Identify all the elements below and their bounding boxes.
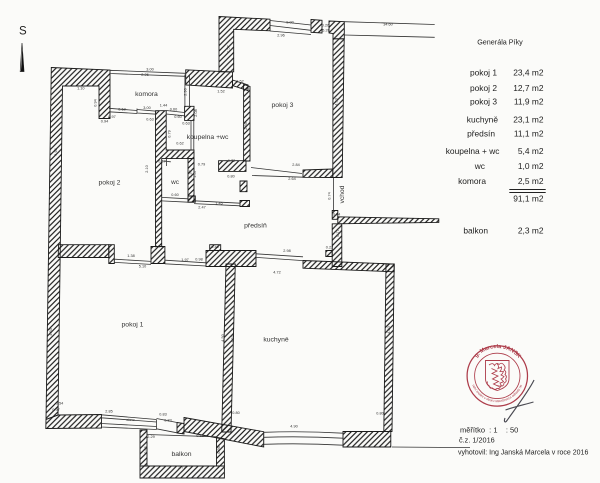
svg-text:S: S [19,26,27,38]
svg-text:1.57: 1.57 [193,170,197,177]
svg-text:2.10: 2.10 [145,165,149,172]
svg-text:5,4 m2: 5,4 m2 [518,146,544,156]
svg-text:kuchyně: kuchyně [263,337,289,344]
svg-text:5.10: 5.10 [139,265,146,269]
svg-text:0.83: 0.83 [159,413,166,417]
svg-text:23,1 m2: 23,1 m2 [513,114,544,124]
svg-text:0.72: 0.72 [228,159,235,163]
svg-text:1.38: 1.38 [127,254,134,258]
svg-text:wc: wc [474,161,485,171]
svg-text:1.97: 1.97 [181,258,188,262]
svg-text:0.63: 0.63 [146,118,153,122]
svg-text:1,0 m2: 1,0 m2 [518,161,544,171]
svg-text:wc: wc [170,179,180,186]
svg-text:4.53: 4.53 [49,328,53,335]
svg-text:pokoj 2: pokoj 2 [99,180,121,187]
svg-text:3.00: 3.00 [143,106,150,110]
svg-text:11,9 m2: 11,9 m2 [514,97,544,107]
svg-text:č.z. 1/2016: č.z. 1/2016 [459,436,495,445]
svg-text:5.26: 5.26 [322,29,329,33]
svg-text:2.29: 2.29 [147,435,154,439]
svg-text:12,7 m2: 12,7 m2 [513,83,544,93]
svg-text:předsín: předsín [467,129,495,139]
svg-text:Generála Píky: Generála Píky [477,38,523,47]
svg-text:0.95: 0.95 [144,446,148,453]
svg-text:1.44: 1.44 [160,104,167,108]
svg-text:0.17: 0.17 [155,245,162,249]
svg-text:pokoj 3: pokoj 3 [470,97,497,107]
svg-text:0.94: 0.94 [101,120,108,124]
svg-text:0.17: 0.17 [158,160,165,164]
svg-text:pokoj 3: pokoj 3 [272,102,294,109]
svg-text:0.62: 0.62 [118,108,125,112]
svg-text:0.63: 0.63 [182,122,189,126]
svg-text:4.53: 4.53 [231,335,235,342]
svg-text:pokoj 1: pokoj 1 [470,67,497,77]
svg-text:4.50: 4.50 [387,326,391,333]
svg-text:předsíň: předsíň [244,222,267,229]
svg-text:0.60: 0.60 [171,193,178,197]
svg-text:0.26: 0.26 [322,24,329,28]
svg-text:91,1 m2: 91,1 m2 [513,194,544,204]
svg-text:3.52: 3.52 [236,80,243,84]
svg-text:34.60: 34.60 [383,23,393,27]
svg-text:0.62: 0.62 [176,142,183,146]
svg-text:4.92: 4.92 [54,148,58,155]
svg-text:okno: okno [126,418,134,422]
svg-text:2.55: 2.55 [244,122,248,129]
svg-text:0.80: 0.80 [232,411,239,415]
svg-text:komora: komora [135,91,158,98]
svg-text:0.94: 0.94 [94,99,98,106]
svg-text:1.37: 1.37 [189,170,193,177]
svg-text:23,4 m2: 23,4 m2 [513,67,544,77]
svg-text:0.46: 0.46 [211,245,218,249]
svg-text:0.54: 0.54 [56,402,63,406]
svg-text:1.57: 1.57 [227,45,231,52]
svg-text:4.53: 4.53 [335,98,339,105]
svg-text:balkon: balkon [463,226,488,236]
svg-text:koupelna +wc: koupelna +wc [187,134,229,141]
svg-text:0.74: 0.74 [328,192,332,199]
svg-text:2.84: 2.84 [292,163,299,167]
svg-text:2.26: 2.26 [141,73,148,77]
svg-text:2.73: 2.73 [178,466,185,470]
svg-text:0.79: 0.79 [168,130,172,137]
svg-text:1.45: 1.45 [215,202,222,206]
svg-text:pokoj 2: pokoj 2 [470,83,497,93]
svg-text:vyhotovil: Ing Janská Marcela: vyhotovil: Ing Janská Marcela v roce 201… [458,450,588,457]
svg-text:1.10: 1.10 [77,87,84,91]
svg-text:0.95: 0.95 [217,446,221,453]
svg-text:4.90: 4.90 [290,425,297,429]
svg-text:0.79: 0.79 [198,163,205,167]
svg-text:pokoj 1: pokoj 1 [122,321,144,328]
svg-text:2.90: 2.90 [184,88,188,95]
svg-text:0.83: 0.83 [196,434,203,438]
svg-text:2.47: 2.47 [198,206,205,210]
svg-text:0.22: 0.22 [326,246,333,250]
svg-text:0.60: 0.60 [174,115,181,119]
svg-text:0.83: 0.83 [164,419,171,423]
svg-text:0.80: 0.80 [227,175,234,179]
svg-text:balkon: balkon [171,451,191,458]
svg-text:2.98: 2.98 [283,249,290,253]
svg-text:0.98: 0.98 [195,258,202,262]
svg-text:2.85: 2.85 [105,410,112,414]
svg-text:koupelna + wc: koupelna + wc [446,146,500,156]
svg-text:0.80: 0.80 [376,412,383,416]
svg-text:3.00: 3.00 [146,68,153,72]
svg-text:vchod: vchod [339,185,346,203]
svg-text:kuchyně: kuchyně [467,114,499,124]
svg-text:komora: komora [458,176,486,186]
svg-text:měřítko : 1 : 50: měřítko : 1 : 50 [460,426,518,435]
svg-text:1.52: 1.52 [217,90,224,94]
svg-text:9.00: 9.00 [286,21,293,25]
svg-text:2.96: 2.96 [277,34,284,38]
svg-text:0.74: 0.74 [333,213,340,217]
svg-text:0.97: 0.97 [108,115,115,119]
svg-text:2.64: 2.64 [288,177,295,181]
svg-text:4.72: 4.72 [273,271,280,275]
svg-text:2.08: 2.08 [194,109,198,116]
svg-text:0.60: 0.60 [170,108,177,112]
svg-text:2,5 m2: 2,5 m2 [518,176,544,186]
svg-text:11,1 m2: 11,1 m2 [514,129,544,139]
svg-text:4.50: 4.50 [221,334,225,341]
svg-text:0.77: 0.77 [336,229,340,236]
svg-text:0.97: 0.97 [52,408,59,412]
svg-text:2,3 m2: 2,3 m2 [518,226,544,236]
